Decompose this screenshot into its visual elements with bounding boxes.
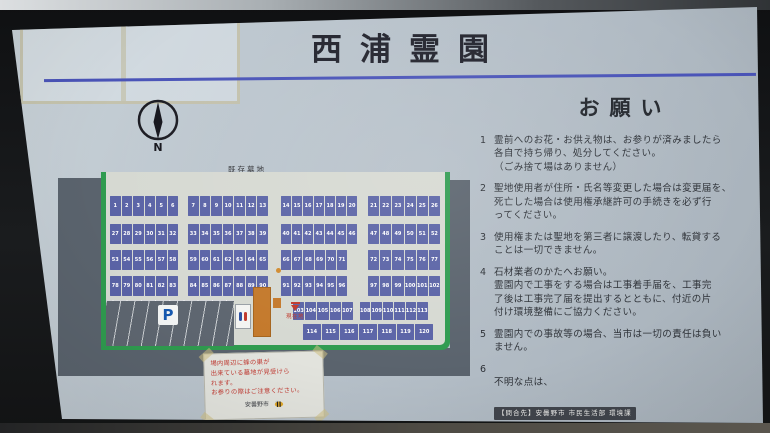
plot-group-r2-g2: 33343536373839 — [188, 224, 268, 244]
plot-93: 93 — [303, 276, 313, 296]
notice-items: 1霊前へのお花・お供え物は、お参りが済みましたら 各自で持ち帰り、処分してくださ… — [480, 134, 760, 355]
plot-81: 81 — [145, 276, 156, 296]
plot-12: 12 — [246, 196, 257, 216]
item-text: 霊前へのお花・お供え物は、お参りが済みましたら 各自で持ち帰り、処分してください… — [494, 134, 722, 174]
parking-lot: P — [106, 300, 234, 346]
photo-of-cemetery-sign: 西浦霊園 N 既存墓地 1234567891011121314151617181… — [0, 0, 770, 433]
plot-group-r4-g3: 919293949596 — [281, 276, 347, 296]
plot-59: 59 — [188, 250, 199, 270]
plot-107: 107 — [342, 302, 353, 320]
plot-group-r3-g3: 666768697071 — [281, 250, 347, 270]
plot-area: 1234567891011121314151617181920212223242… — [106, 172, 445, 345]
plot-4: 4 — [145, 196, 156, 216]
item-text: 聖地使用者が住所・氏名等変更した場合は変更届を、 死亡した場合は使用権承継許可の… — [494, 182, 732, 222]
plot-40: 40 — [281, 224, 291, 244]
contact-office-chip: 【問合先】安曇野市 市民生活部 環境課 — [494, 407, 636, 420]
plot-98: 98 — [380, 276, 391, 296]
plot-92: 92 — [292, 276, 302, 296]
plot-97: 97 — [368, 276, 379, 296]
road-left — [58, 178, 102, 376]
sign-board: 西浦霊園 N 既存墓地 1234567891011121314151617181… — [0, 0, 770, 433]
plot-5: 5 — [156, 196, 167, 216]
notice-column: お願い 1霊前へのお花・お供え物は、お参りが済みましたら 各自で持ち帰り、処分し… — [480, 92, 760, 433]
plot-26: 26 — [429, 196, 440, 216]
item-number: 2 — [480, 182, 489, 222]
plot-67: 67 — [292, 250, 302, 270]
plot-32: 32 — [168, 224, 179, 244]
plot-38: 38 — [246, 224, 257, 244]
plot-18: 18 — [325, 196, 335, 216]
plot-56: 56 — [145, 250, 156, 270]
road-right — [450, 180, 470, 352]
plot-113: 113 — [417, 302, 427, 320]
plot-31: 31 — [156, 224, 167, 244]
plot-9: 9 — [211, 196, 222, 216]
item-number: 4 — [480, 266, 489, 320]
plot-74: 74 — [392, 250, 403, 270]
plot-117: 117 — [359, 324, 377, 340]
plot-39: 39 — [257, 224, 268, 244]
plot-28: 28 — [122, 224, 133, 244]
item-number: 1 — [480, 134, 489, 174]
plot-47: 47 — [368, 224, 379, 244]
notice-item-3: 3使用権または聖地を第三者に譲渡したり、転貸する ことは一切できません。 — [480, 231, 760, 258]
female-figure-icon — [244, 312, 247, 321]
tape-line — [121, 9, 126, 101]
parking-sign: P — [158, 305, 178, 325]
plot-66: 66 — [281, 250, 291, 270]
plot-85: 85 — [200, 276, 211, 296]
plot-62: 62 — [223, 250, 234, 270]
plot-55: 55 — [133, 250, 144, 270]
plot-87: 87 — [223, 276, 234, 296]
plot-78: 78 — [110, 276, 121, 296]
plot-88: 88 — [234, 276, 245, 296]
marker-bar — [291, 302, 300, 304]
plot-51: 51 — [417, 224, 428, 244]
small-building — [273, 298, 281, 308]
plot-group-r6-g1: 114115116117118119120 — [303, 324, 433, 340]
plot-6: 6 — [168, 196, 179, 216]
plot-86: 86 — [211, 276, 222, 296]
plot-49: 49 — [392, 224, 403, 244]
plot-99: 99 — [392, 276, 403, 296]
plot-110: 110 — [383, 302, 393, 320]
plot-group-r3-g4: 727374757677 — [368, 250, 440, 270]
plot-57: 57 — [156, 250, 167, 270]
plot-20: 20 — [347, 196, 357, 216]
plot-94: 94 — [315, 276, 325, 296]
plot-10: 10 — [223, 196, 234, 216]
compass-needle-icon — [134, 98, 182, 144]
plot-group-r2-g3: 40414243444546 — [281, 224, 357, 244]
plot-21: 21 — [368, 196, 379, 216]
plot-group-r1-g2: 78910111213 — [188, 196, 268, 216]
plot-3: 3 — [133, 196, 144, 216]
warning-signature: 安曇野市 — [211, 398, 317, 410]
plot-group-r5-g4: 108109110111112113 — [360, 302, 426, 320]
plot-109: 109 — [371, 302, 381, 320]
plot-34: 34 — [200, 224, 211, 244]
plot-group-r1-g3: 14151617181920 — [281, 196, 357, 216]
plot-95: 95 — [326, 276, 336, 296]
plot-11: 11 — [234, 196, 245, 216]
plot-63: 63 — [234, 250, 245, 270]
plot-23: 23 — [392, 196, 403, 216]
item-number: 3 — [480, 231, 489, 258]
plot-33: 33 — [188, 224, 199, 244]
plot-82: 82 — [156, 276, 167, 296]
plot-8: 8 — [200, 196, 211, 216]
plot-group-r1-g4: 212223242526 — [368, 196, 440, 216]
tape-corner — [314, 409, 329, 424]
notice-item-4: 4石材業者のかたへお願い。 霊園内で工事をする場合は工事着手届を、工事完 了後は… — [480, 266, 760, 320]
plot-group-r4-g1: 787980818283 — [110, 276, 178, 296]
compass-icon: N — [134, 98, 182, 154]
plot-42: 42 — [303, 224, 313, 244]
cemetery-map: 既存墓地 12345678910111213141516171819202122… — [58, 168, 470, 376]
plot-68: 68 — [303, 250, 313, 270]
plot-79: 79 — [122, 276, 133, 296]
plot-22: 22 — [380, 196, 391, 216]
plot-13: 13 — [257, 196, 268, 216]
plot-101: 101 — [417, 276, 428, 296]
plot-120: 120 — [415, 324, 433, 340]
item-text: 霊園内での事故等の場合、当市は一切の責任は負い ません。 — [494, 328, 722, 355]
plot-71: 71 — [337, 250, 347, 270]
plot-64: 64 — [246, 250, 257, 270]
plot-105: 105 — [317, 302, 328, 320]
plot-114: 114 — [303, 324, 321, 340]
plot-100: 100 — [405, 276, 416, 296]
plot-group-r4-g4: 979899100101102 — [368, 276, 440, 296]
marker-pointer — [291, 305, 299, 311]
plot-69: 69 — [315, 250, 325, 270]
plot-30: 30 — [145, 224, 156, 244]
plot-83: 83 — [168, 276, 179, 296]
you-are-here-label: 現在地 — [282, 312, 308, 320]
plot-77: 77 — [429, 250, 440, 270]
item-text: 使用権または聖地を第三者に譲渡したり、転貸する ことは一切できません。 — [494, 231, 721, 258]
plot-102: 102 — [429, 276, 440, 296]
plot-19: 19 — [336, 196, 346, 216]
plot-41: 41 — [292, 224, 302, 244]
plot-119: 119 — [397, 324, 415, 340]
plot-108: 108 — [360, 302, 370, 320]
notice-heading: お願い — [480, 92, 760, 122]
restroom-sign — [235, 304, 251, 329]
item-text: 石材業者のかたへお願い。 霊園内で工事をする場合は工事着手届を、工事完 了後は工… — [494, 266, 712, 320]
plot-45: 45 — [336, 224, 346, 244]
plot-116: 116 — [340, 324, 358, 340]
plot-14: 14 — [281, 196, 291, 216]
plot-60: 60 — [200, 250, 211, 270]
plot-65: 65 — [257, 250, 268, 270]
plot-53: 53 — [110, 250, 121, 270]
plot-52: 52 — [429, 224, 440, 244]
plot-group-r1-g1: 123456 — [110, 196, 178, 216]
plot-35: 35 — [211, 224, 222, 244]
plot-106: 106 — [330, 302, 341, 320]
sign-title: 西浦霊園 — [150, 24, 650, 69]
plot-27: 27 — [110, 224, 121, 244]
plot-36: 36 — [223, 224, 234, 244]
plot-72: 72 — [368, 250, 379, 270]
plot-115: 115 — [322, 324, 340, 340]
plot-112: 112 — [406, 302, 416, 320]
small-marker-dot — [276, 268, 281, 273]
plot-44: 44 — [325, 224, 335, 244]
plot-1: 1 — [110, 196, 121, 216]
notice-item-1: 1霊前へのお花・お供え物は、お参りが済みましたら 各自で持ち帰り、処分してくださ… — [480, 134, 760, 174]
item-number: 5 — [480, 328, 489, 355]
plot-16: 16 — [303, 196, 313, 216]
plot-24: 24 — [405, 196, 416, 216]
sky-strip — [0, 0, 770, 10]
plot-37: 37 — [234, 224, 245, 244]
notice-item-5: 5霊園内での事故等の場合、当市は一切の責任は負い ません。 — [480, 328, 760, 355]
plot-84: 84 — [188, 276, 199, 296]
plot-70: 70 — [326, 250, 336, 270]
plot-29: 29 — [133, 224, 144, 244]
plot-58: 58 — [168, 250, 179, 270]
plot-7: 7 — [188, 196, 199, 216]
plot-46: 46 — [347, 224, 357, 244]
plot-group-r3-g1: 535455565758 — [110, 250, 178, 270]
hedge-border: 1234567891011121314151617181920212223242… — [101, 172, 450, 350]
plot-75: 75 — [405, 250, 416, 270]
item-text: 不明な点は、 — [494, 377, 553, 388]
plot-group-r2-g1: 272829303132 — [110, 224, 178, 244]
plot-43: 43 — [314, 224, 324, 244]
ground-strip — [0, 423, 770, 433]
plot-73: 73 — [380, 250, 391, 270]
plot-76: 76 — [417, 250, 428, 270]
plot-17: 17 — [314, 196, 324, 216]
bee-warning-note: 場内周辺に蜂の巣が 出来ている墓地が見受けら れます。 お参りの際はご注意くださ… — [203, 350, 325, 420]
plot-48: 48 — [380, 224, 391, 244]
male-figure-icon — [239, 312, 242, 321]
plot-15: 15 — [292, 196, 302, 216]
notice-item-2: 2聖地使用者が住所・氏名等変更した場合は変更届を、 死亡した場合は使用権承継許可… — [480, 182, 760, 222]
plot-group-r2-g4: 474849505152 — [368, 224, 440, 244]
plot-96: 96 — [337, 276, 347, 296]
office-building — [253, 287, 271, 337]
plot-2: 2 — [122, 196, 133, 216]
city-name: 安曇野市 — [245, 399, 269, 409]
bee-icon — [273, 399, 284, 407]
plot-80: 80 — [133, 276, 144, 296]
plot-111: 111 — [394, 302, 404, 320]
plot-25: 25 — [417, 196, 428, 216]
plot-61: 61 — [211, 250, 222, 270]
you-are-here-marker: 現在地 — [282, 302, 308, 320]
plot-54: 54 — [122, 250, 133, 270]
plot-group-r3-g2: 59606162636465 — [188, 250, 268, 270]
plot-118: 118 — [378, 324, 396, 340]
warning-text: 場内周辺に蜂の巣が 出来ている墓地が見受けら れます。 お参りの際はご注意くださ… — [210, 357, 317, 399]
plot-50: 50 — [405, 224, 416, 244]
plot-91: 91 — [281, 276, 291, 296]
